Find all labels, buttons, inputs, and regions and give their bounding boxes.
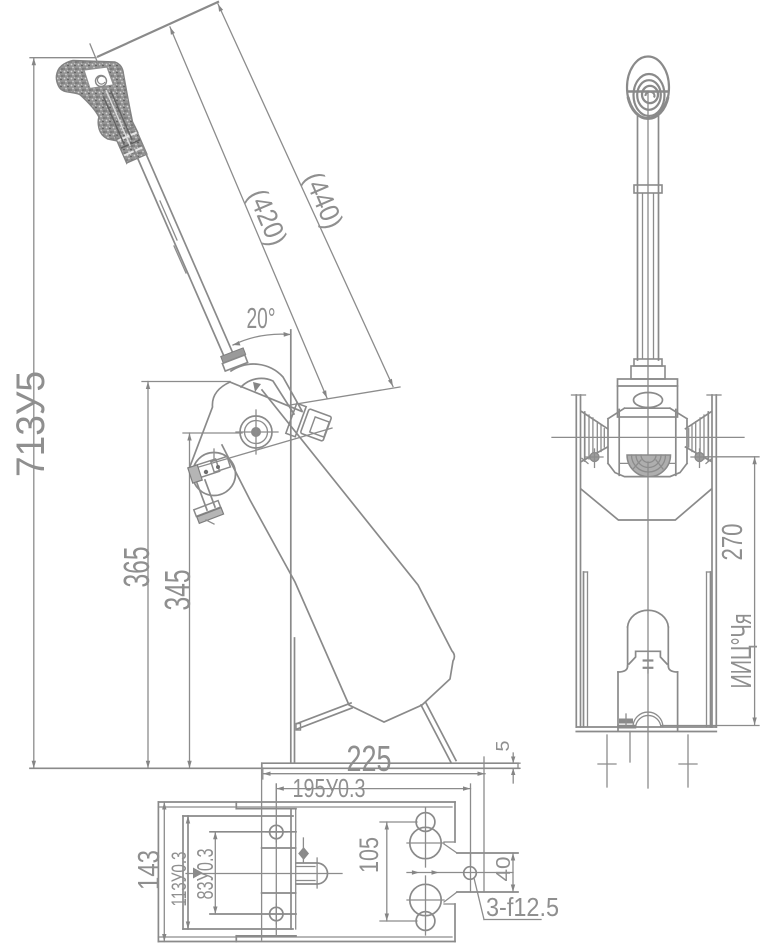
svg-text:3-f12.5: 3-f12.5 bbox=[486, 892, 559, 922]
svg-text:365: 365 bbox=[116, 547, 157, 588]
svg-text:345: 345 bbox=[157, 570, 198, 611]
svg-text:195У0.3: 195У0.3 bbox=[293, 773, 366, 803]
svg-text:5: 5 bbox=[493, 741, 513, 752]
svg-text:113У0.3: 113У0.3 bbox=[168, 852, 191, 907]
svg-text:713У5: 713У5 bbox=[9, 371, 53, 477]
svg-text:40: 40 bbox=[493, 857, 515, 882]
svg-text:20°: 20° bbox=[247, 303, 276, 335]
svg-text:143: 143 bbox=[131, 850, 166, 890]
svg-text:105: 105 bbox=[354, 837, 384, 873]
svg-text:270: 270 bbox=[717, 524, 749, 561]
svg-text:ИИЦ°Чя: ИИЦ°Чя bbox=[726, 614, 758, 689]
